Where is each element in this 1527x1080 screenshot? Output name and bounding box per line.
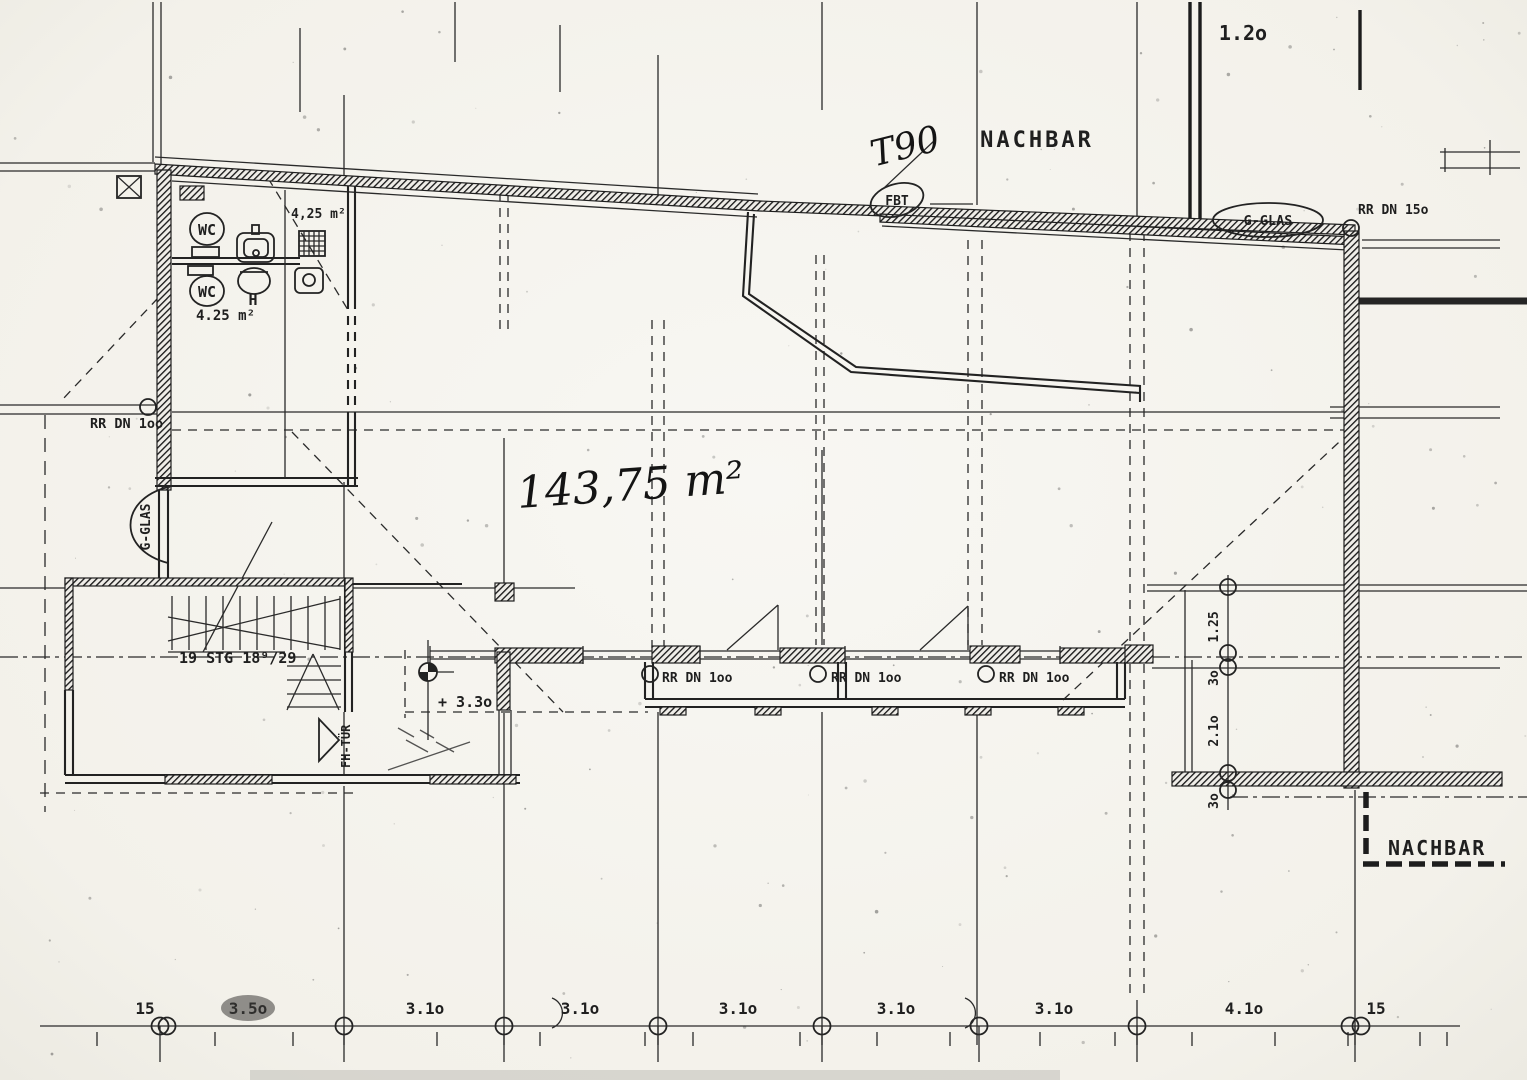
north-wall [155, 164, 1355, 235]
wc-rooms [117, 176, 358, 486]
roof-drain-100-b-label: RR DN 1oo [831, 671, 902, 686]
small-column [495, 583, 514, 601]
stair-room [65, 578, 520, 784]
speckles [14, 10, 1527, 1058]
pencil-scribbles [388, 728, 470, 770]
scan-artifacts [250, 1070, 1060, 1080]
fbt-label: FBT [885, 194, 909, 209]
roof-drain-100-left-label: RR DN 1oo [90, 416, 163, 432]
stair-note: 19 STG 18⁹/29 [179, 649, 296, 667]
column-marker [117, 176, 141, 198]
window-flag-markers [727, 605, 968, 650]
roof-drain-circle [978, 666, 994, 682]
floorplan-drawing: 15 3.5o 3.1o 3.1o 3.1o 3.1o 3.1o 4.1o 15… [0, 0, 1527, 1080]
door-tag: FH-TÜR [338, 724, 353, 768]
glass-label-top: G-GLAS [1244, 213, 1293, 229]
roof-drain-100-c-label: RR DN 1oo [999, 671, 1070, 686]
glass-label-left: G-GLAS [139, 503, 154, 550]
basin-tag: H [248, 291, 257, 309]
scanned-floorplan-page: 15 3.5o 3.1o 3.1o 3.1o 3.1o 3.1o 4.1o 15… [0, 0, 1527, 1080]
interior-wall [743, 212, 1141, 402]
level-note: + 3.3o [438, 693, 492, 711]
washbasin [237, 225, 274, 262]
east-wall [1344, 231, 1359, 788]
door-swing-triangle [319, 719, 339, 761]
roof-drain-150-label: RR DN 15o [1358, 203, 1429, 218]
lightwells [645, 645, 1502, 786]
dim-label-right: 3o [1207, 793, 1222, 809]
dim-label: 3.1o [877, 999, 916, 1018]
wc-upper-label: WC [198, 221, 216, 239]
dim-label: 3.1o [719, 999, 758, 1018]
dimension-chain-bottom: 15 3.5o 3.1o 3.1o 3.1o 3.1o 3.1o 4.1o 15 [40, 995, 1460, 1062]
dim-label: 3.1o [406, 999, 445, 1018]
roof-drain-circle [140, 399, 156, 415]
dim-label: 3.1o [561, 999, 600, 1018]
neighbor-label-top: NACHBAR [980, 128, 1094, 153]
fire-rating-note: T90 [866, 119, 944, 176]
roof-drain-100-a-label: RR DN 1oo [662, 671, 733, 686]
dim-label: 3.1o [1035, 999, 1074, 1018]
dim-label-right: 3o [1207, 670, 1222, 686]
dim-label-right: 2.1o [1207, 715, 1222, 746]
neighbor-label-bottom: NACHBAR [1388, 836, 1486, 860]
window-row [430, 605, 1140, 664]
west-wall [157, 170, 171, 490]
dim-label: 15 [135, 999, 154, 1018]
dim-label: 15 [1366, 999, 1385, 1018]
level-marker [419, 640, 454, 740]
wc-lower-area: 4.25 m² [196, 308, 255, 324]
annotations: FBT T90 NACHBAR NACHBAR 1.2o G-GLAS RR D… [90, 21, 1486, 860]
grid-lines [0, 2, 1527, 1045]
shaft-symbol [180, 186, 204, 200]
top-gap-dimension: 1.2o [1219, 21, 1267, 45]
wc-lower-label: WC [198, 283, 216, 301]
hall-area-note: 143,75 m² [515, 452, 745, 519]
wc-upper-area: 4,25 m² [291, 207, 346, 222]
dim-label: 4.1o [1225, 999, 1264, 1018]
dim-label-right: 1.25 [1207, 611, 1222, 642]
ink-smudge [221, 995, 275, 1021]
floor-drain-round [295, 268, 323, 293]
roof-drain-circle [810, 666, 826, 682]
